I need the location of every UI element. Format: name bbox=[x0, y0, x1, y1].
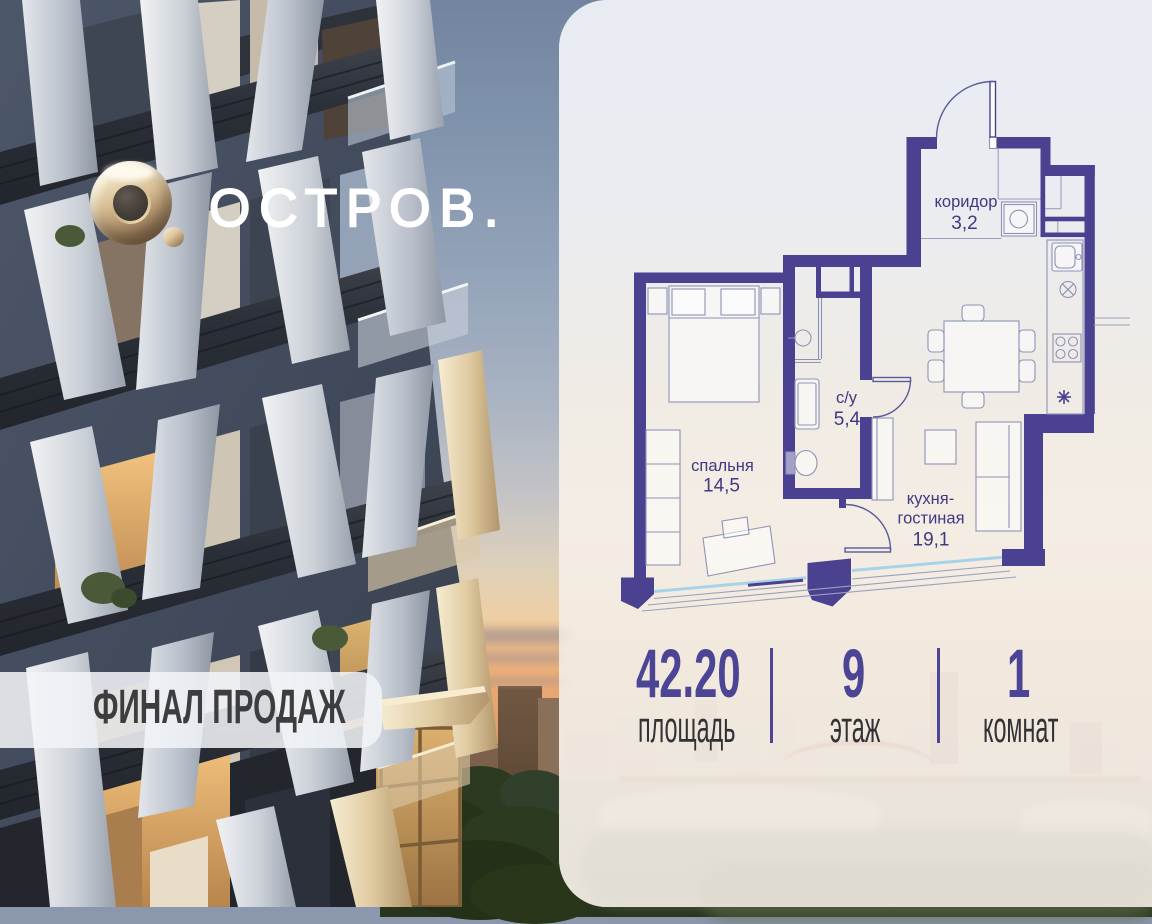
svg-text:с/у: с/у bbox=[836, 389, 858, 407]
svg-text:гостиная: гостиная bbox=[897, 510, 964, 528]
svg-text:19,1: 19,1 bbox=[913, 530, 950, 551]
svg-text:14,5: 14,5 bbox=[703, 476, 740, 497]
svg-text:спальня: спальня bbox=[691, 457, 754, 475]
svg-text:коридор: коридор bbox=[935, 193, 998, 211]
svg-text:5,4: 5,4 bbox=[834, 409, 861, 430]
svg-text:кухня-: кухня- bbox=[907, 490, 954, 508]
svg-text:3,2: 3,2 bbox=[951, 213, 977, 234]
